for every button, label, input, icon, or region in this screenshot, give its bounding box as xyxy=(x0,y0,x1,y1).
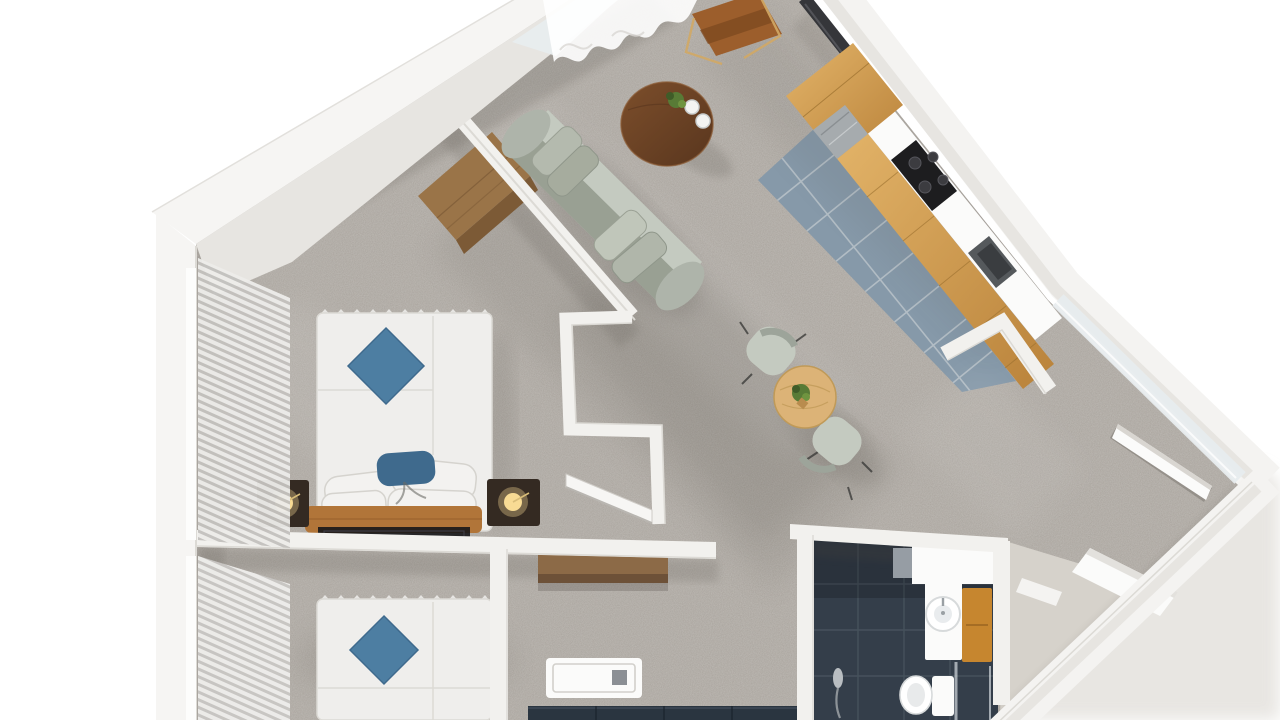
shower-tray xyxy=(546,658,642,698)
coffee-table xyxy=(621,82,713,166)
cup xyxy=(685,100,699,114)
bed-1 xyxy=(317,309,492,531)
window-blinds-bedroom1 xyxy=(198,258,290,548)
window-strip xyxy=(186,268,196,540)
window-blinds-bedroom2 xyxy=(198,556,290,720)
bedroom-2 xyxy=(317,595,492,720)
bed-2 xyxy=(317,595,492,720)
blue-accent-pillow xyxy=(376,450,436,487)
dining-table xyxy=(774,366,836,428)
oak-bath-cabinet xyxy=(962,588,992,662)
floorplan-render xyxy=(0,0,1280,720)
navy-cabinet-run xyxy=(528,706,800,720)
vanity-column-sink xyxy=(925,580,962,660)
cup xyxy=(696,114,710,128)
nightstand-right xyxy=(487,479,540,526)
window-strip xyxy=(186,556,196,720)
